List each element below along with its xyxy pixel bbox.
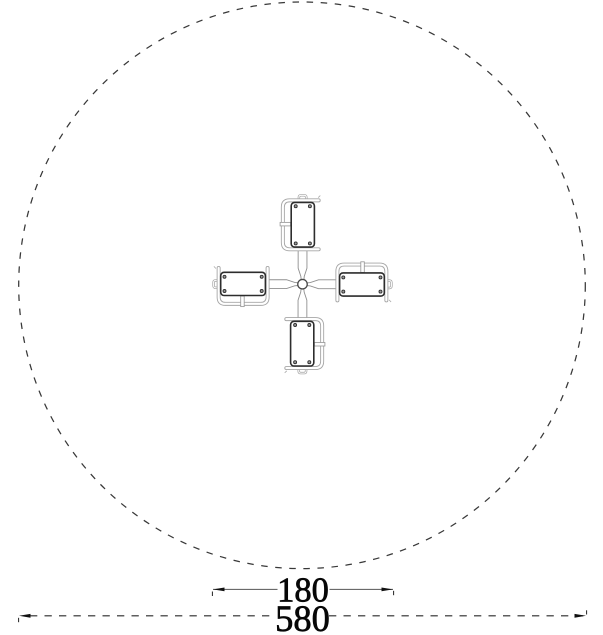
svg-text:580: 580 (275, 598, 330, 635)
